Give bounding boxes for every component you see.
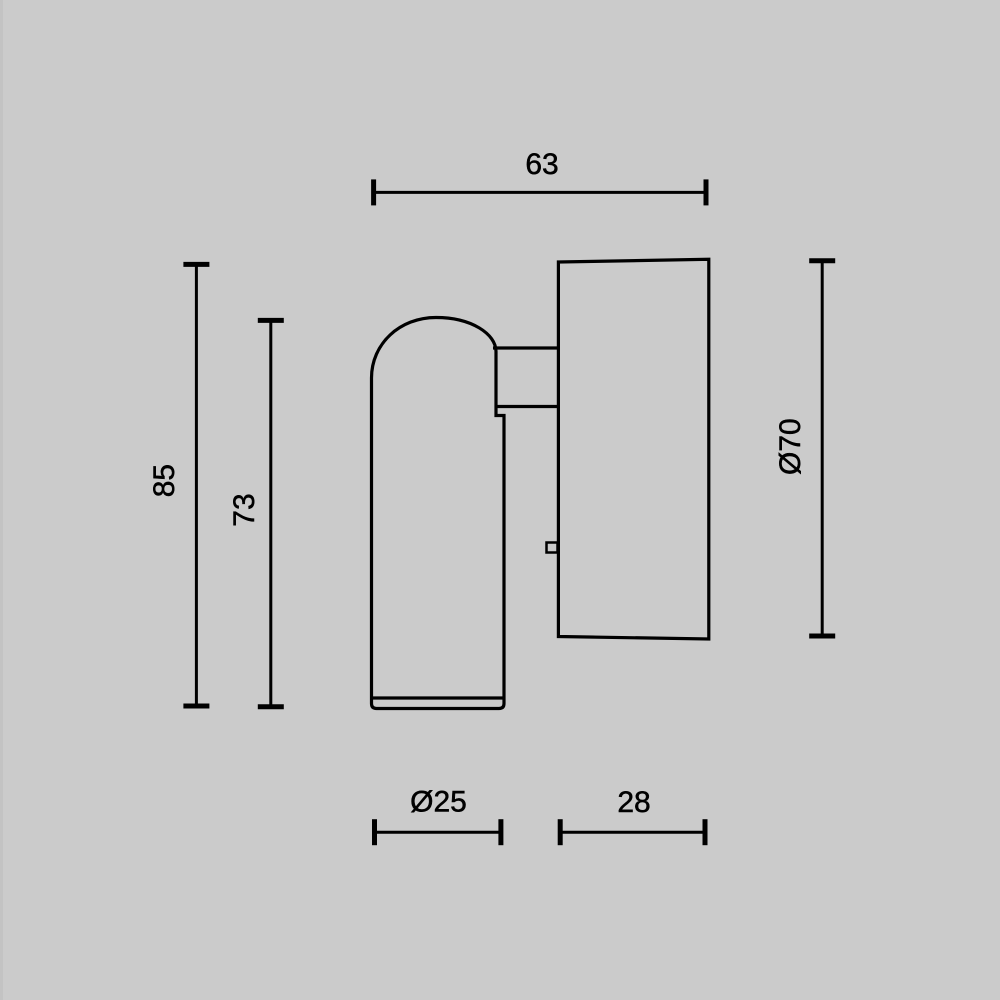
- svg-text:73: 73: [228, 493, 261, 526]
- svg-text:28: 28: [617, 786, 650, 819]
- svg-text:63: 63: [525, 148, 558, 181]
- svg-text:85: 85: [148, 464, 181, 497]
- svg-text:Ø70: Ø70: [774, 418, 807, 475]
- svg-text:Ø25: Ø25: [410, 786, 467, 819]
